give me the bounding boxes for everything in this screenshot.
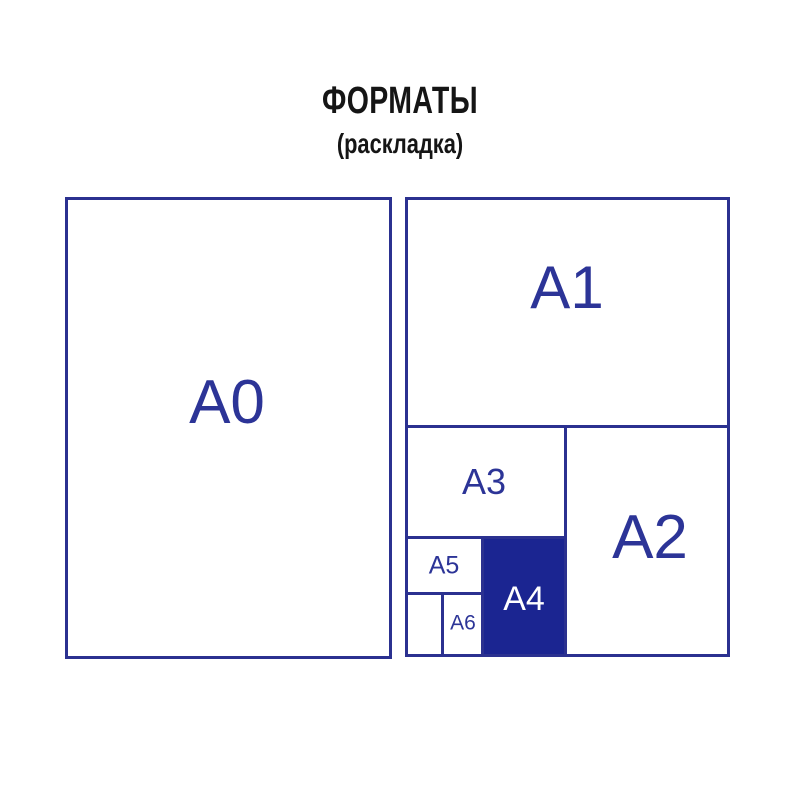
format-group-box: A1 A2 A3 A4 A5 A6 [405, 197, 730, 657]
divider-a3-bottom [408, 536, 567, 539]
divider-a6-left [441, 592, 444, 654]
format-box-a0: A0 [65, 197, 392, 659]
format-label-a4: A4 [503, 582, 545, 616]
format-label-a6: A6 [450, 613, 476, 634]
paper-formats-diagram: ФОРМАТЫ (раскладка) A0 A1 A2 A3 A4 A5 A6 [0, 0, 800, 800]
page-subtitle: (раскладка) [88, 130, 712, 158]
format-label-a3: A3 [462, 464, 506, 500]
format-label-a5: A5 [429, 554, 460, 579]
format-label-a1: A1 [530, 258, 603, 318]
divider-a5-bottom [408, 592, 484, 595]
format-label-a2: A2 [612, 507, 688, 569]
page-title: ФОРМАТЫ [100, 82, 700, 120]
format-label-a0: A0 [189, 372, 265, 434]
divider-a4-left [481, 536, 484, 654]
divider-a2-left [564, 425, 567, 654]
divider-a1-bottom [408, 425, 727, 428]
